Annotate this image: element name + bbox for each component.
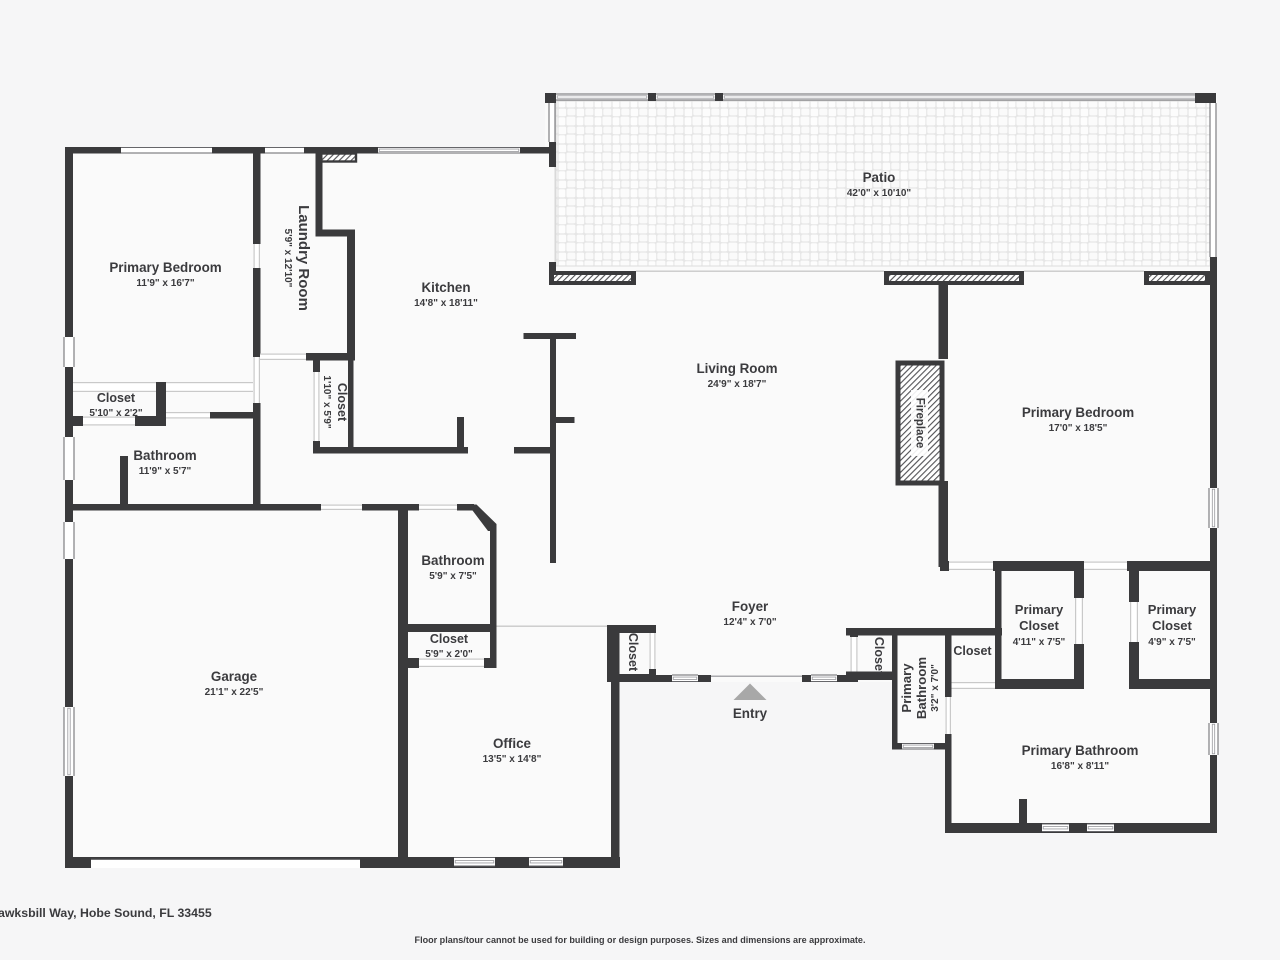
svg-text:Closet: Closet	[1019, 618, 1059, 633]
svg-text:5'9" x 7'5": 5'9" x 7'5"	[429, 571, 477, 582]
svg-text:Primary: Primary	[899, 663, 914, 713]
svg-text:Closet: Closet	[953, 644, 992, 658]
svg-text:Closet: Closet	[430, 632, 469, 646]
svg-text:13'5" x 14'8": 13'5" x 14'8"	[483, 754, 542, 765]
svg-text:3'2" x 7'0": 3'2" x 7'0"	[930, 664, 941, 712]
svg-text:17'0" x 18'5": 17'0" x 18'5"	[1049, 423, 1108, 434]
svg-text:Primary Bedroom: Primary Bedroom	[109, 260, 221, 275]
svg-text:21'1" x 22'5": 21'1" x 22'5"	[205, 687, 264, 698]
svg-text:Primary: Primary	[1148, 602, 1197, 617]
svg-text:Closet: Closet	[626, 633, 640, 672]
svg-text:1'10" x 5'9": 1'10" x 5'9"	[321, 375, 332, 428]
svg-text:16'8" x 8'11": 16'8" x 8'11"	[1051, 761, 1109, 772]
svg-text:24'9" x 18'7": 24'9" x 18'7"	[708, 379, 767, 390]
svg-text:12'4" x 7'0": 12'4" x 7'0"	[723, 617, 776, 628]
svg-text:Laundry Room: Laundry Room	[295, 205, 312, 311]
svg-text:Foyer: Foyer	[732, 599, 769, 614]
svg-text:Primary Bathroom: Primary Bathroom	[1022, 743, 1139, 758]
svg-text:Bathroom: Bathroom	[133, 448, 196, 463]
svg-text:Floor plans/tour cannot be use: Floor plans/tour cannot be used for buil…	[415, 935, 866, 945]
svg-text:Closet: Closet	[335, 383, 349, 422]
svg-text:Primary: Primary	[1015, 602, 1064, 617]
svg-text:5'9" x 12'10": 5'9" x 12'10"	[282, 229, 293, 288]
svg-text:Closet: Closet	[872, 637, 886, 676]
svg-text:Kitchen: Kitchen	[421, 280, 470, 295]
svg-text:Closet: Closet	[97, 391, 136, 405]
svg-text:Bathroom: Bathroom	[421, 553, 484, 568]
svg-text:Entry: Entry	[733, 706, 768, 721]
svg-text:11'9" x 16'7": 11'9" x 16'7"	[136, 278, 194, 289]
svg-text:Living Room: Living Room	[696, 361, 777, 376]
svg-text:awksbill Way, Hobe Sound, FL 3: awksbill Way, Hobe Sound, FL 33455	[0, 906, 212, 920]
svg-text:Garage: Garage	[211, 669, 257, 684]
svg-text:Primary Bedroom: Primary Bedroom	[1022, 405, 1134, 420]
svg-text:Office: Office	[493, 736, 531, 751]
svg-text:4'9" x 7'5": 4'9" x 7'5"	[1148, 637, 1196, 648]
svg-text:4'11" x 7'5": 4'11" x 7'5"	[1013, 637, 1066, 648]
svg-text:Patio: Patio	[863, 170, 896, 185]
svg-text:5'10" x 2'2": 5'10" x 2'2"	[89, 408, 142, 419]
svg-text:14'8" x 18'11": 14'8" x 18'11"	[414, 298, 478, 309]
svg-text:11'9" x 5'7": 11'9" x 5'7"	[139, 466, 192, 477]
svg-text:42'0" x 10'10": 42'0" x 10'10"	[847, 188, 912, 199]
svg-text:Bathroom: Bathroom	[914, 657, 929, 719]
svg-text:Fireplace: Fireplace	[914, 398, 926, 449]
svg-text:5'9" x 2'0": 5'9" x 2'0"	[425, 649, 473, 660]
svg-text:Closet: Closet	[1152, 618, 1192, 633]
